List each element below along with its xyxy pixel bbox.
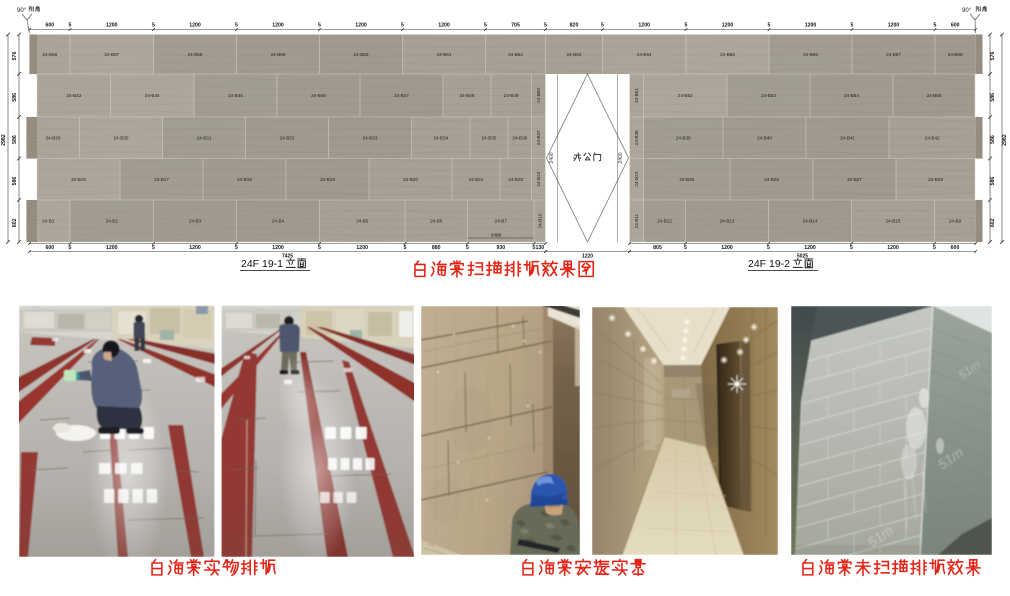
svg-text:5: 5 <box>544 23 547 29</box>
svg-text:24-B41: 24-B41 <box>840 135 855 140</box>
svg-text:24-B52: 24-B52 <box>678 93 693 98</box>
svg-text:586: 586 <box>990 177 996 186</box>
svg-text:24-B65: 24-B65 <box>720 52 735 57</box>
svg-text:24-B13: 24-B13 <box>720 219 735 224</box>
svg-text:24-B18: 24-B18 <box>237 177 252 182</box>
svg-text:24-B55: 24-B55 <box>927 93 942 98</box>
svg-text:576: 576 <box>990 52 996 61</box>
svg-text:1200: 1200 <box>272 23 284 29</box>
svg-text:24-B61: 24-B61 <box>437 52 452 57</box>
svg-text:1200: 1200 <box>804 245 816 251</box>
svg-text:600: 600 <box>951 245 960 251</box>
svg-text:600: 600 <box>45 23 54 29</box>
svg-text:24-B46: 24-B46 <box>311 93 326 98</box>
svg-text:1200: 1200 <box>805 23 817 29</box>
svg-text:24-B45: 24-B45 <box>228 93 243 98</box>
svg-text:1200: 1200 <box>721 245 733 251</box>
svg-text:24-B56: 24-B56 <box>42 52 57 57</box>
svg-text:24-B29: 24-B29 <box>46 135 61 140</box>
svg-text:24-B66: 24-B66 <box>803 52 818 57</box>
svg-text:24-B44: 24-B44 <box>145 93 160 98</box>
svg-text:24-B2: 24-B2 <box>106 219 119 224</box>
svg-text:2982: 2982 <box>1002 134 1008 146</box>
svg-text:24-B68: 24-B68 <box>948 52 963 57</box>
svg-text:24-B34: 24-B34 <box>433 135 448 140</box>
svg-text:1200: 1200 <box>106 245 118 251</box>
svg-text:24-B37: 24-B37 <box>536 130 541 145</box>
svg-text:24-B15: 24-B15 <box>886 219 901 224</box>
svg-text:24-B47: 24-B47 <box>394 93 409 98</box>
svg-text:5: 5 <box>601 23 604 29</box>
svg-text:5: 5 <box>466 245 469 251</box>
svg-text:586: 586 <box>990 93 996 102</box>
svg-text:1200: 1200 <box>272 245 284 251</box>
svg-text:2400: 2400 <box>549 152 555 163</box>
svg-text:24-B25: 24-B25 <box>679 177 694 182</box>
svg-text:24-B14: 24-B14 <box>803 219 818 224</box>
svg-text:1200: 1200 <box>189 245 201 251</box>
svg-text:1200: 1200 <box>106 23 118 29</box>
svg-text:1200: 1200 <box>438 23 450 29</box>
svg-text:5: 5 <box>685 23 688 29</box>
svg-text:600: 600 <box>951 23 960 29</box>
svg-text:24-B17: 24-B17 <box>154 177 169 182</box>
svg-text:90°: 90° <box>962 8 972 14</box>
svg-text:24-B5: 24-B5 <box>356 219 369 224</box>
svg-text:1200: 1200 <box>887 245 899 251</box>
svg-text:24-B30: 24-B30 <box>114 135 129 140</box>
svg-text:24-B58: 24-B58 <box>188 52 203 57</box>
svg-text:24-B28: 24-B28 <box>928 177 943 182</box>
svg-text:586: 586 <box>990 135 996 144</box>
svg-text:5: 5 <box>401 23 404 29</box>
svg-text:24-B3: 24-B3 <box>189 219 202 224</box>
svg-text:24-B42: 24-B42 <box>925 135 940 140</box>
svg-text:5: 5 <box>69 23 72 29</box>
svg-text:5: 5 <box>152 23 155 29</box>
svg-text:24-B50: 24-B50 <box>536 88 541 103</box>
svg-text:24-B48: 24-B48 <box>460 93 475 98</box>
svg-text:5: 5 <box>152 245 155 251</box>
svg-text:24-B31: 24-B31 <box>197 135 212 140</box>
svg-text:24-B39: 24-B39 <box>676 135 691 140</box>
svg-text:24F 19-2: 24F 19-2 <box>748 258 790 270</box>
svg-text:24-B1: 24-B1 <box>42 219 55 224</box>
svg-text:24-B38: 24-B38 <box>634 130 639 145</box>
svg-text:820: 820 <box>570 23 579 29</box>
svg-text:5: 5 <box>318 23 321 29</box>
svg-text:24-B53: 24-B53 <box>761 93 776 98</box>
svg-text:24-B4: 24-B4 <box>272 219 285 224</box>
svg-text:24-B59: 24-B59 <box>271 52 286 57</box>
svg-text:24-B7: 24-B7 <box>495 219 508 224</box>
svg-text:5: 5 <box>684 245 687 251</box>
svg-text:24-B43: 24-B43 <box>66 93 81 98</box>
svg-text:24-B12: 24-B12 <box>657 219 672 224</box>
svg-text:24-B62: 24-B62 <box>508 52 523 57</box>
svg-text:5: 5 <box>934 23 937 29</box>
svg-text:576: 576 <box>12 52 18 61</box>
svg-text:930: 930 <box>496 245 505 251</box>
svg-text:90°: 90° <box>17 8 27 14</box>
svg-text:24-B51: 24-B51 <box>634 88 639 103</box>
svg-text:600: 600 <box>45 245 54 251</box>
svg-text:24-B23: 24-B23 <box>536 171 541 186</box>
svg-text:24-B27: 24-B27 <box>847 177 862 182</box>
svg-text:2982: 2982 <box>1 134 7 146</box>
svg-text:1200: 1200 <box>888 23 900 29</box>
svg-text:24-B49: 24-B49 <box>504 93 519 98</box>
svg-text:602: 602 <box>990 218 996 227</box>
svg-text:24-B22: 24-B22 <box>508 177 523 182</box>
svg-text:24-B64: 24-B64 <box>637 52 652 57</box>
svg-text:5: 5 <box>69 245 72 251</box>
svg-text:1200: 1200 <box>355 23 367 29</box>
svg-text:24-B57: 24-B57 <box>104 52 119 57</box>
svg-text:24-B60: 24-B60 <box>354 52 369 57</box>
svg-text:5: 5 <box>484 23 487 29</box>
svg-text:5: 5 <box>318 245 321 251</box>
svg-text:5: 5 <box>235 245 238 251</box>
svg-text:1220: 1220 <box>582 254 593 260</box>
svg-text:24-B63: 24-B63 <box>567 52 582 57</box>
svg-text:5: 5 <box>404 245 407 251</box>
svg-text:1200: 1200 <box>189 23 201 29</box>
svg-text:602: 602 <box>12 218 18 227</box>
svg-text:24-B67: 24-B67 <box>886 52 901 57</box>
svg-text:586: 586 <box>12 93 18 102</box>
svg-text:5: 5 <box>768 23 771 29</box>
svg-text:24F 19-1: 24F 19-1 <box>241 258 283 270</box>
svg-text:24-B54: 24-B54 <box>844 93 859 98</box>
svg-text:24-B9: 24-B9 <box>949 219 962 224</box>
svg-text:24-B10: 24-B10 <box>537 213 542 228</box>
svg-text:24-B11: 24-B11 <box>634 213 639 228</box>
svg-text:24-B19: 24-B19 <box>320 177 335 182</box>
svg-text:1200: 1200 <box>722 23 734 29</box>
svg-text:880: 880 <box>432 245 441 251</box>
svg-text:7425: 7425 <box>282 254 293 260</box>
svg-text:1200: 1200 <box>638 23 650 29</box>
svg-text:24-B20: 24-B20 <box>403 177 418 182</box>
svg-text:586: 586 <box>12 177 18 186</box>
svg-text:5: 5 <box>767 245 770 251</box>
svg-text:1200: 1200 <box>356 245 368 251</box>
svg-text:5: 5 <box>851 23 854 29</box>
svg-text:5: 5 <box>933 245 936 251</box>
svg-text:2400: 2400 <box>618 152 624 163</box>
svg-text:130: 130 <box>535 245 544 251</box>
svg-text:24-B40: 24-B40 <box>757 135 772 140</box>
svg-text:24-B35: 24-B35 <box>482 135 497 140</box>
svg-text:24-B21: 24-B21 <box>469 177 484 182</box>
svg-text:586: 586 <box>12 135 18 144</box>
svg-text:24-B32: 24-B32 <box>280 135 295 140</box>
svg-text:24-B24: 24-B24 <box>634 171 639 186</box>
svg-text:24-B26: 24-B26 <box>764 177 779 182</box>
svg-text:24-B33: 24-B33 <box>363 135 378 140</box>
svg-text:24-B6: 24-B6 <box>430 219 443 224</box>
svg-text:2468: 2468 <box>491 233 502 238</box>
svg-text:5: 5 <box>850 245 853 251</box>
svg-text:24-B16: 24-B16 <box>71 177 86 182</box>
svg-text:705: 705 <box>511 23 520 29</box>
svg-text:5: 5 <box>235 23 238 29</box>
svg-text:24-B36: 24-B36 <box>512 135 527 140</box>
svg-text:805: 805 <box>653 245 662 251</box>
